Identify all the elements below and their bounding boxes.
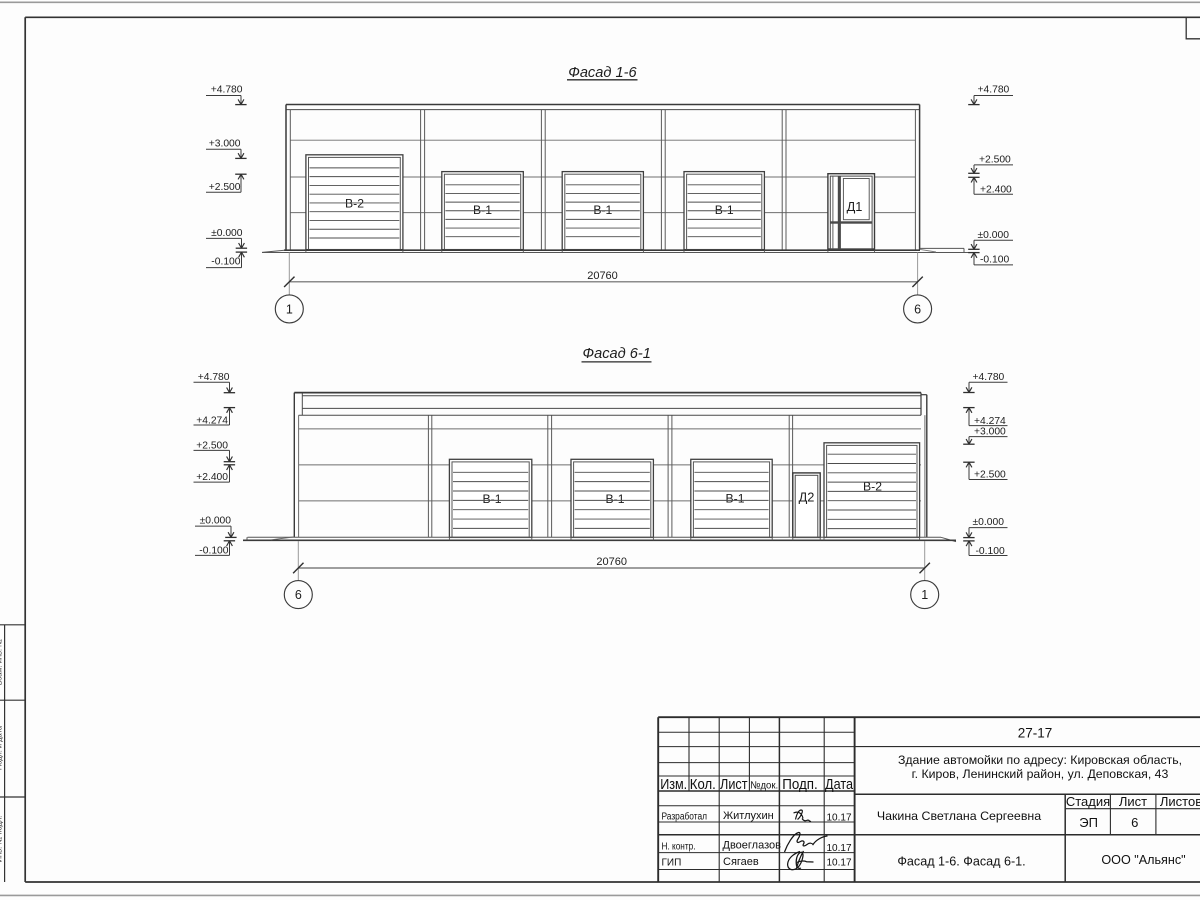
svg-text:±0.000: ±0.000 (211, 228, 243, 239)
svg-text:Сягаев: Сягаев (723, 856, 759, 868)
svg-text:Двоеглазов: Двоеглазов (723, 839, 782, 851)
svg-text:Подп.: Подп. (782, 777, 818, 793)
svg-text:Лист: Лист (720, 777, 748, 793)
svg-text:1: 1 (286, 302, 293, 316)
svg-text:ООО "Альянс": ООО "Альянс" (1101, 853, 1185, 867)
svg-text:В-1: В-1 (593, 203, 612, 217)
svg-text:В-1: В-1 (473, 203, 492, 217)
svg-text:Дата: Дата (825, 777, 854, 793)
svg-text:№док.: №док. (750, 780, 778, 792)
svg-text:+3.000: +3.000 (209, 139, 241, 150)
svg-text:20760: 20760 (587, 270, 618, 282)
svg-text:В-2: В-2 (345, 197, 364, 211)
svg-text:±0.000: ±0.000 (200, 516, 232, 527)
svg-text:+2.500: +2.500 (196, 440, 228, 451)
svg-text:Подп. и дата: Подп. и дата (0, 725, 4, 770)
svg-text:Здание автомойки по адресу: Ки: Здание автомойки по адресу: Кировская об… (898, 753, 1182, 767)
svg-text:+4.780: +4.780 (978, 85, 1010, 96)
svg-text:Фасад 1-6. Фасад 6-1.: Фасад 1-6. Фасад 6-1. (897, 855, 1025, 869)
svg-text:±0.000: ±0.000 (978, 230, 1010, 241)
svg-text:Инв. № подл.: Инв. № подл. (0, 816, 4, 863)
svg-text:Лист: Лист (1119, 794, 1147, 809)
svg-text:6: 6 (914, 302, 921, 316)
svg-text:Кол.: Кол. (690, 777, 716, 793)
svg-text:+2.400: +2.400 (196, 472, 228, 483)
svg-text:Фасад 6-1: Фасад 6-1 (583, 346, 651, 362)
svg-text:Чакина Светлана Сергеевна: Чакина Светлана Сергеевна (877, 809, 1041, 823)
svg-text:В-1: В-1 (726, 491, 745, 505)
svg-text:6: 6 (295, 588, 302, 602)
svg-text:10.17: 10.17 (826, 843, 851, 854)
svg-text:1: 1 (921, 588, 928, 602)
svg-text:6: 6 (1131, 815, 1138, 830)
svg-text:27-17: 27-17 (1018, 725, 1053, 740)
svg-text:Д1: Д1 (847, 199, 863, 214)
svg-text:+4.780: +4.780 (211, 85, 243, 96)
svg-text:-0.100: -0.100 (211, 257, 240, 268)
svg-text:+2.500: +2.500 (974, 470, 1006, 481)
svg-text:Взам. инв. №: Взам. инв. № (0, 639, 4, 685)
svg-text:Разработал: Разработал (662, 811, 708, 823)
svg-text:+4.780: +4.780 (198, 372, 230, 383)
svg-text:+4.780: +4.780 (973, 372, 1005, 383)
svg-text:Д2: Д2 (799, 490, 815, 505)
svg-text:10.17: 10.17 (826, 858, 851, 869)
svg-text:Изм.: Изм. (660, 777, 687, 793)
svg-text:В-1: В-1 (606, 492, 625, 506)
svg-text:-0.100: -0.100 (199, 545, 228, 556)
svg-text:В-1: В-1 (483, 492, 502, 506)
svg-text:ГИП: ГИП (662, 857, 682, 868)
svg-text:Листов: Листов (1160, 794, 1200, 809)
svg-text:20760: 20760 (596, 556, 627, 568)
svg-text:г. Киров, Ленинский район, ул.: г. Киров, Ленинский район, ул. Деповская… (912, 767, 1169, 781)
svg-text:Фасад 1-6: Фасад 1-6 (568, 65, 637, 81)
svg-text:+2.500: +2.500 (209, 182, 241, 193)
svg-text:Житлухин: Житлухин (723, 810, 774, 822)
svg-text:Н. контр.: Н. контр. (662, 841, 696, 852)
svg-text:±0.000: ±0.000 (973, 517, 1005, 528)
svg-text:В-1: В-1 (715, 203, 734, 217)
svg-text:10.17: 10.17 (826, 813, 851, 824)
svg-text:-0.100: -0.100 (980, 254, 1009, 265)
svg-text:Стадия: Стадия (1066, 794, 1110, 809)
svg-text:+3.000: +3.000 (974, 426, 1006, 437)
svg-text:+2.500: +2.500 (979, 154, 1011, 165)
svg-text:ЭП: ЭП (1079, 815, 1098, 830)
